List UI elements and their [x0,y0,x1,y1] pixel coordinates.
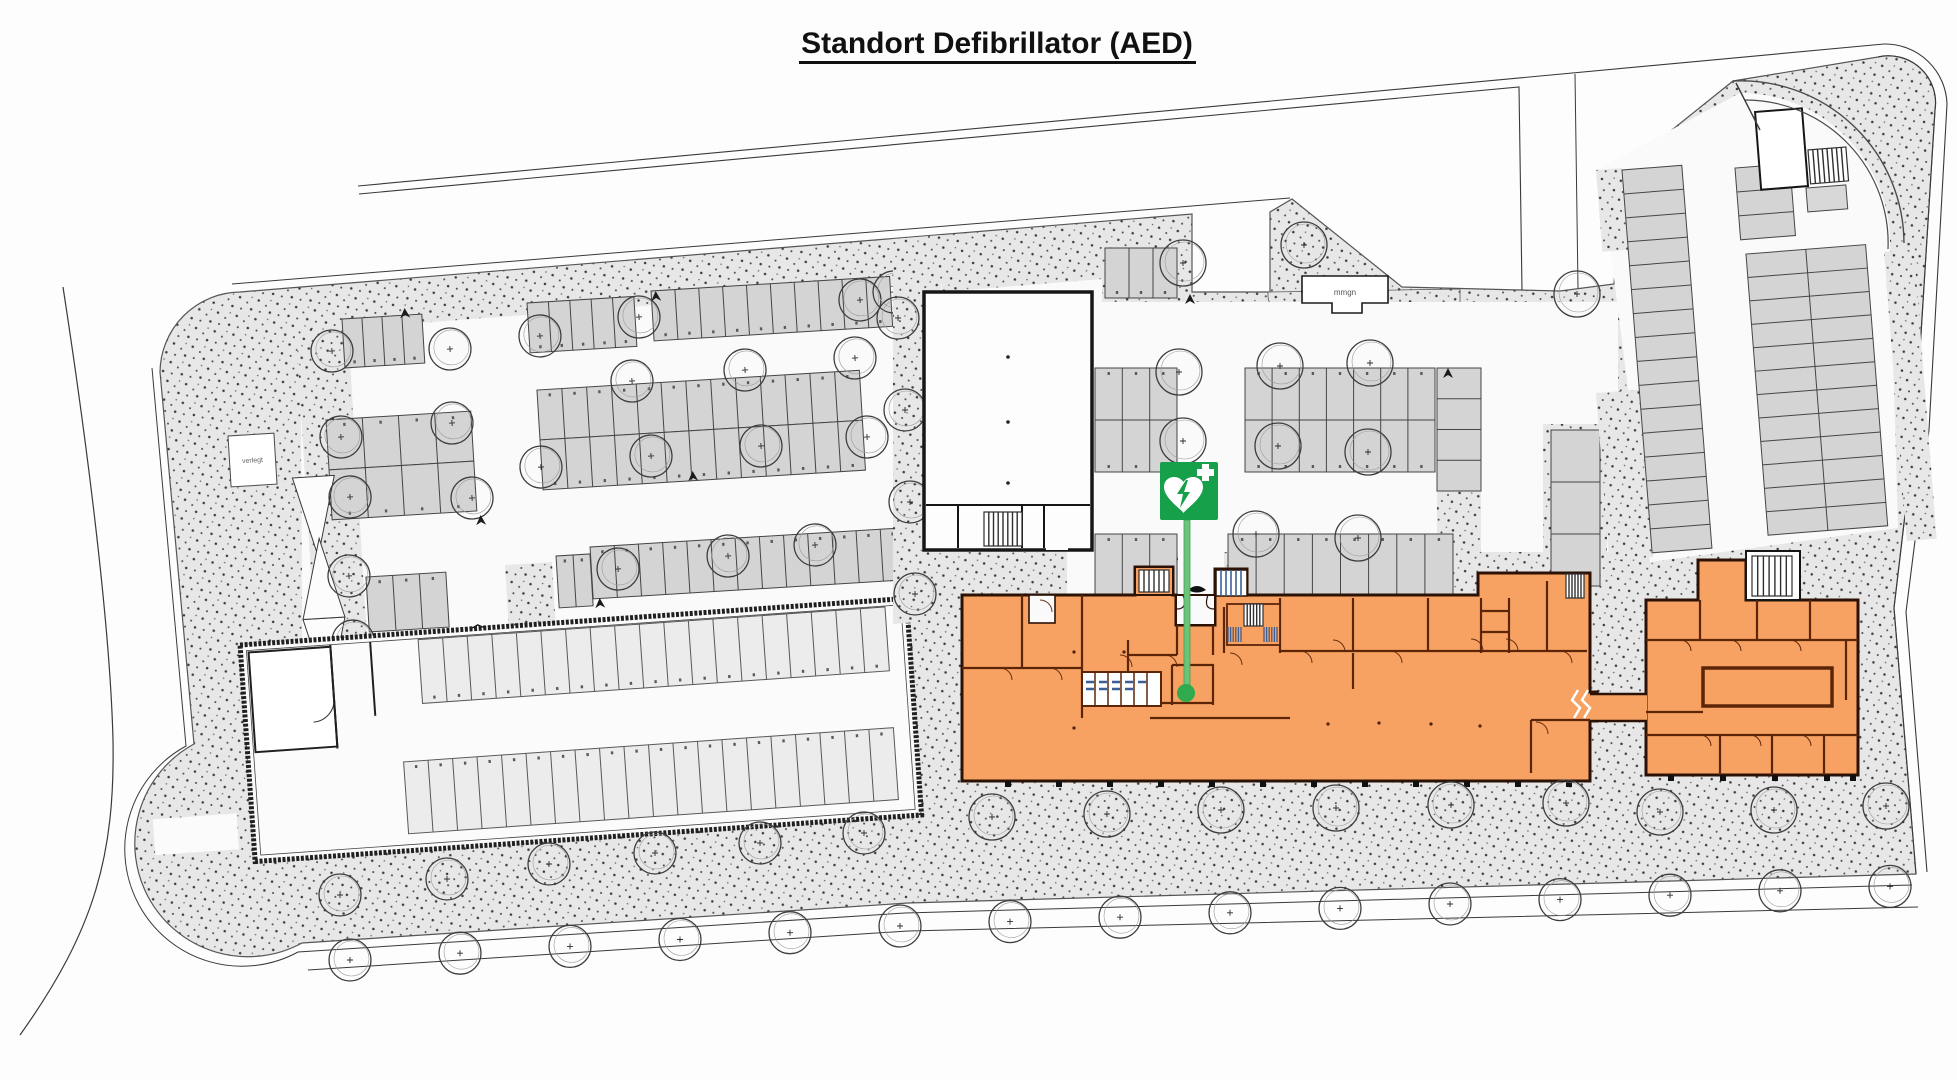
svg-text:Standort Defibrillator (AED): Standort Defibrillator (AED) [801,27,1193,60]
svg-text:verlegt: verlegt [242,457,263,465]
svg-text:mmgn: mmgn [1334,288,1356,297]
